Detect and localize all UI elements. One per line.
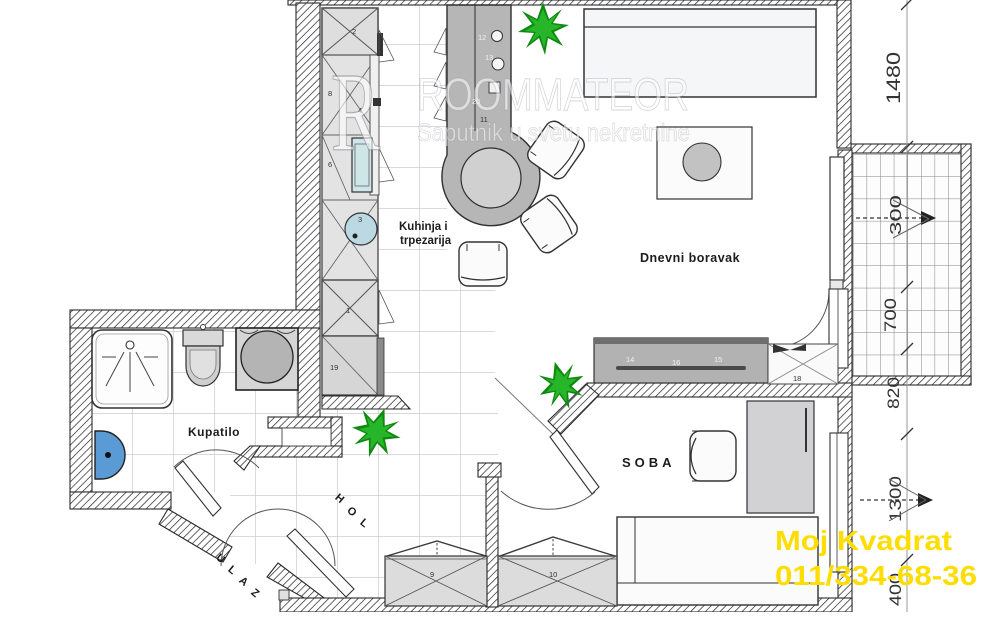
svg-text:19: 19	[330, 363, 338, 372]
svg-text:10: 10	[549, 570, 557, 579]
svg-text:3: 3	[358, 215, 362, 224]
svg-text:9: 9	[430, 570, 434, 579]
svg-text:R: R	[331, 50, 381, 175]
svg-text:13: 13	[485, 53, 493, 62]
svg-text:300: 300	[888, 195, 905, 235]
svg-text:trpezarija: trpezarija	[400, 235, 452, 247]
svg-text:Dnevni boravak: Dnevni boravak	[640, 251, 740, 265]
svg-text:Kuhinja i: Kuhinja i	[399, 221, 448, 233]
svg-text:Saputnik u svetu nekretnine: Saputnik u svetu nekretnine	[417, 119, 690, 147]
svg-text:16: 16	[672, 358, 680, 367]
svg-text:18: 18	[793, 374, 801, 383]
svg-text:700: 700	[881, 298, 900, 332]
svg-text:12: 12	[478, 33, 486, 42]
svg-text:Kupatilo: Kupatilo	[188, 425, 240, 439]
svg-text:SOBA: SOBA	[622, 455, 676, 470]
svg-text:2: 2	[352, 27, 356, 36]
svg-text:011/334-68-36: 011/334-68-36	[775, 560, 977, 591]
svg-text:14: 14	[626, 355, 634, 364]
svg-text:Moj Kvadrat: Moj Kvadrat	[775, 525, 952, 556]
svg-text:15: 15	[714, 355, 722, 364]
svg-text:820: 820	[884, 377, 903, 409]
svg-text:1480: 1480	[884, 52, 905, 104]
svg-text:ROOMMATEOR: ROOMMATEOR	[417, 69, 689, 120]
svg-text:1: 1	[346, 306, 350, 315]
